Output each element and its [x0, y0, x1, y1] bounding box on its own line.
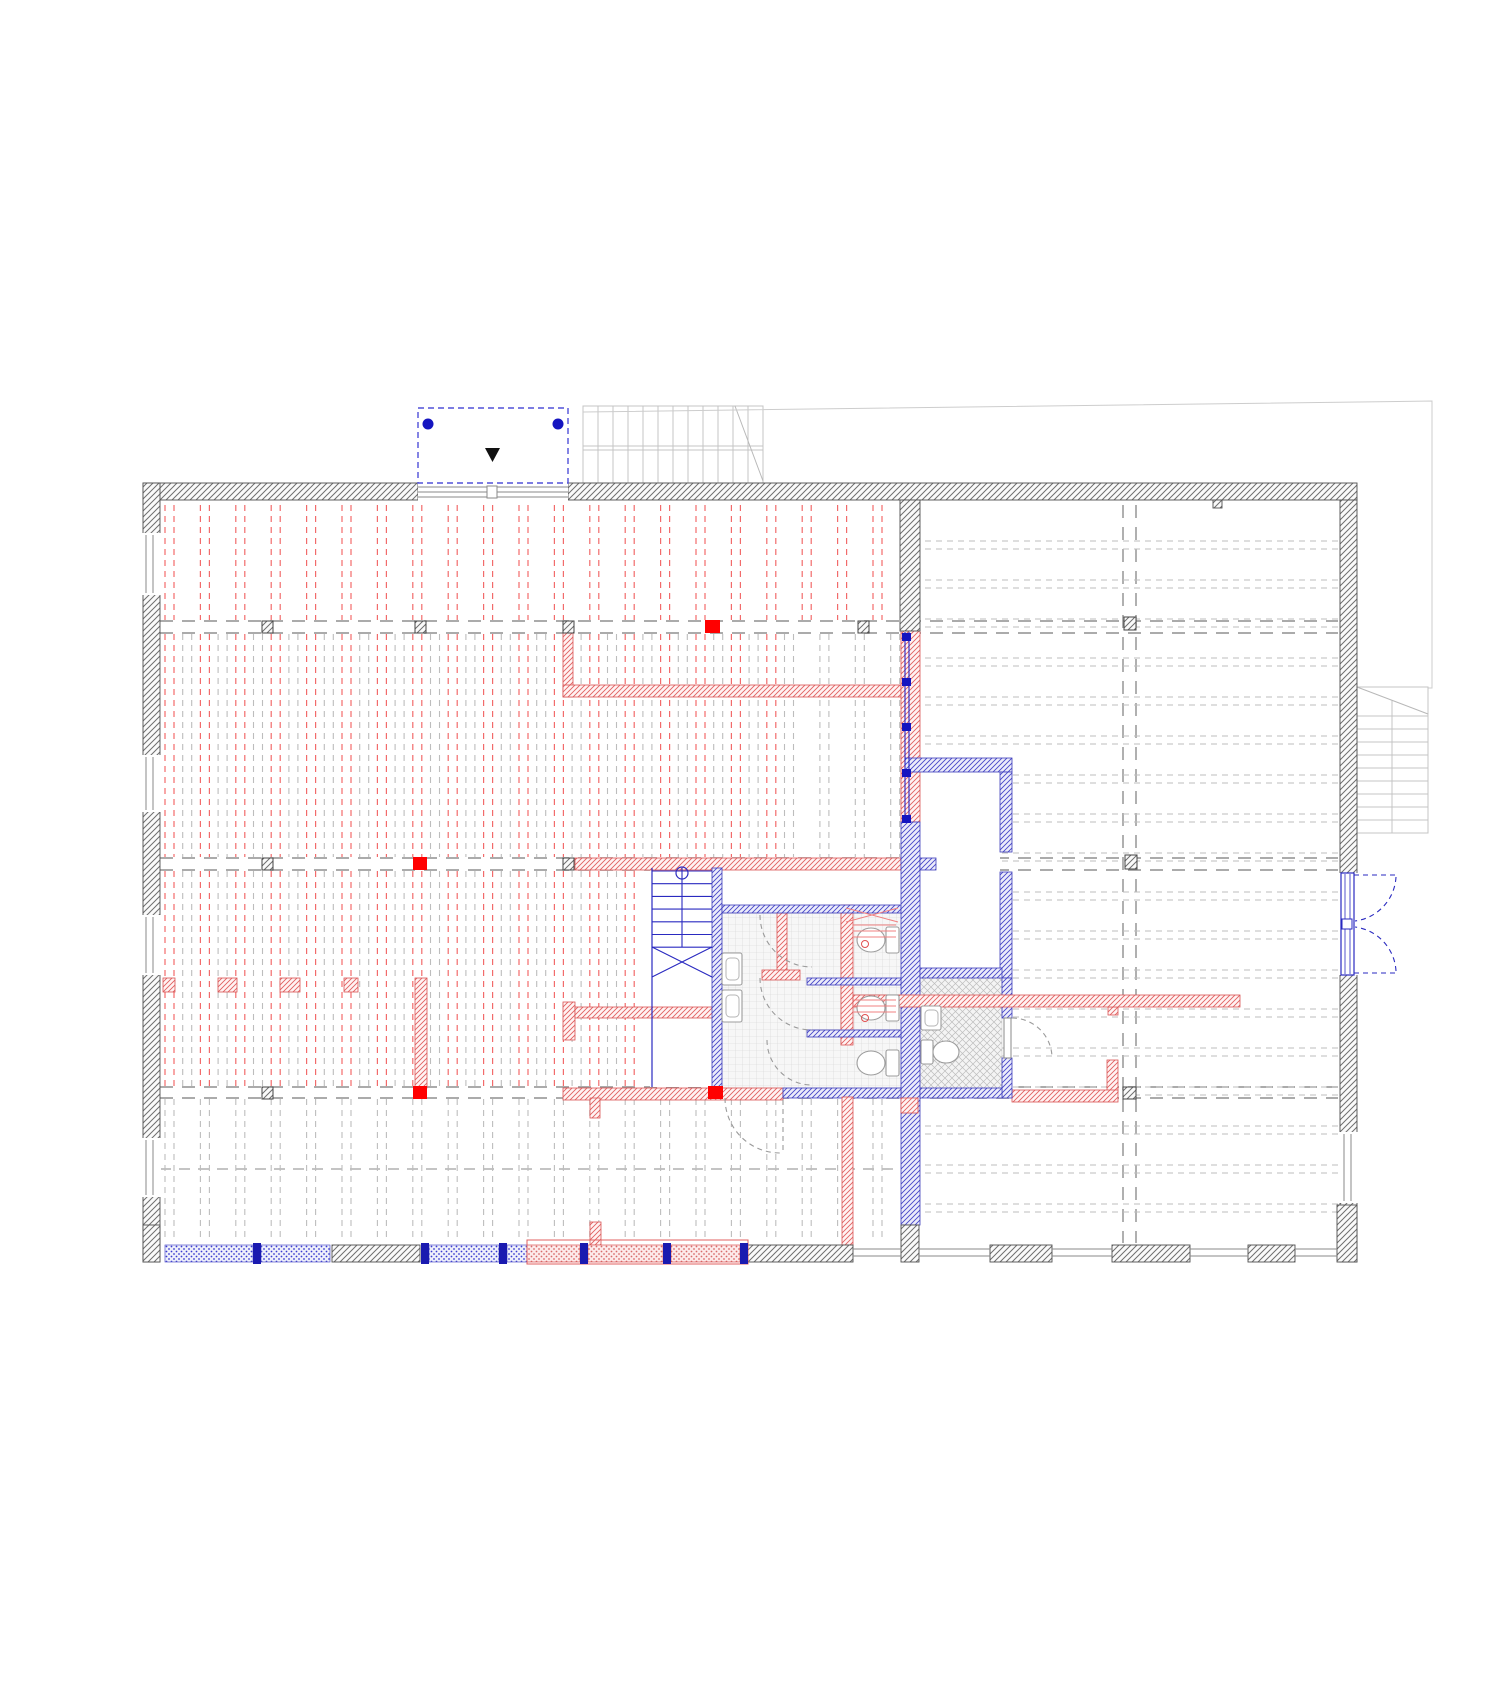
floor-plan-viewport [0, 0, 1500, 1700]
floor-plan-svg [0, 0, 1500, 1700]
paper-background [0, 0, 1500, 1700]
